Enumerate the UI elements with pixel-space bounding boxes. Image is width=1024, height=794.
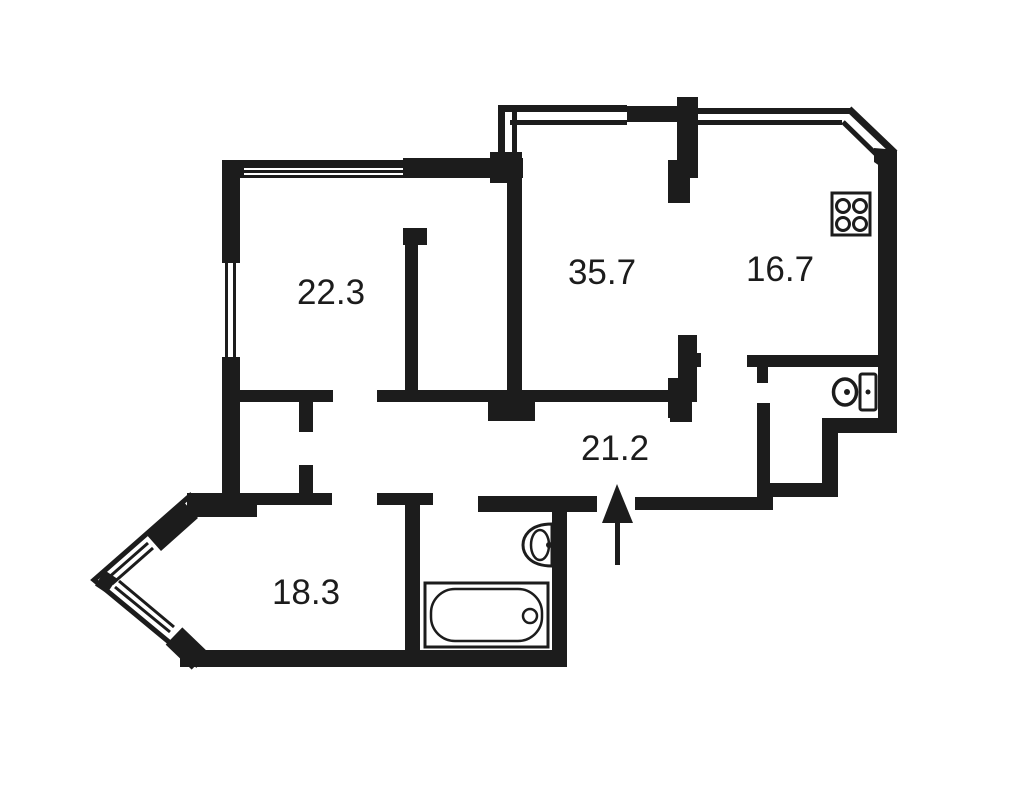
label-hallway-21-2: 21.2 — [581, 429, 649, 468]
label-room-16-7: 16.7 — [746, 250, 814, 289]
toilet-icon — [834, 374, 877, 410]
entrance-arrow-icon — [602, 484, 633, 565]
label-room-35-7: 35.7 — [568, 253, 636, 292]
stove-icon — [832, 193, 870, 235]
label-room-22-3: 22.3 — [297, 273, 365, 312]
window-left-wall — [225, 263, 236, 357]
floor-plan: 22.3 35.7 16.7 21.2 18.3 — [0, 0, 1024, 794]
floor-plan-canvas: 22.3 35.7 16.7 21.2 18.3 — [0, 0, 1024, 794]
window-top-left-room — [242, 170, 403, 178]
sink-icon — [523, 524, 552, 566]
window-living-bay — [510, 112, 627, 152]
window-kitchen — [698, 120, 882, 160]
bathtub-icon — [425, 583, 548, 647]
label-room-18-3: 18.3 — [272, 573, 340, 612]
